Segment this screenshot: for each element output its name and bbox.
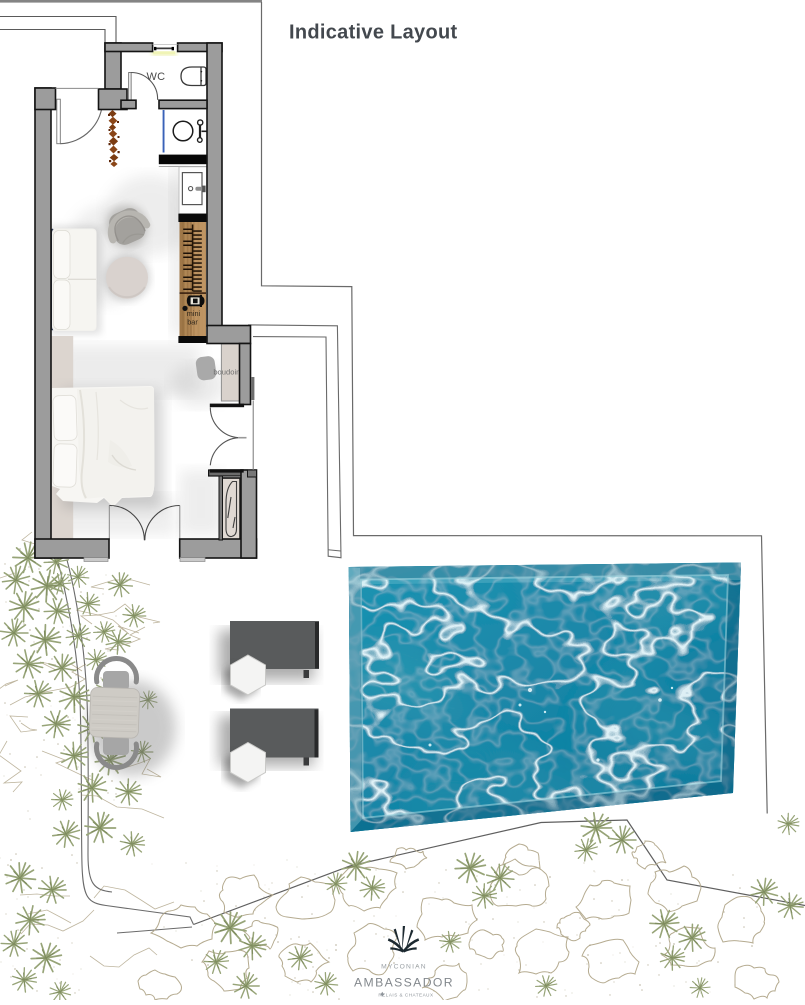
svg-text:AMBASSADOR: AMBASSADOR [354,976,454,990]
svg-text:boudoir: boudoir [213,368,239,377]
svg-text:MYCONIAN: MYCONIAN [381,964,427,971]
svg-text:WC: WC [147,71,166,83]
svg-text:Indicative Layout: Indicative Layout [289,22,458,44]
svg-text:RELAIS & CHATEAUX: RELAIS & CHATEAUX [378,993,433,998]
svg-text:bar: bar [187,318,198,327]
